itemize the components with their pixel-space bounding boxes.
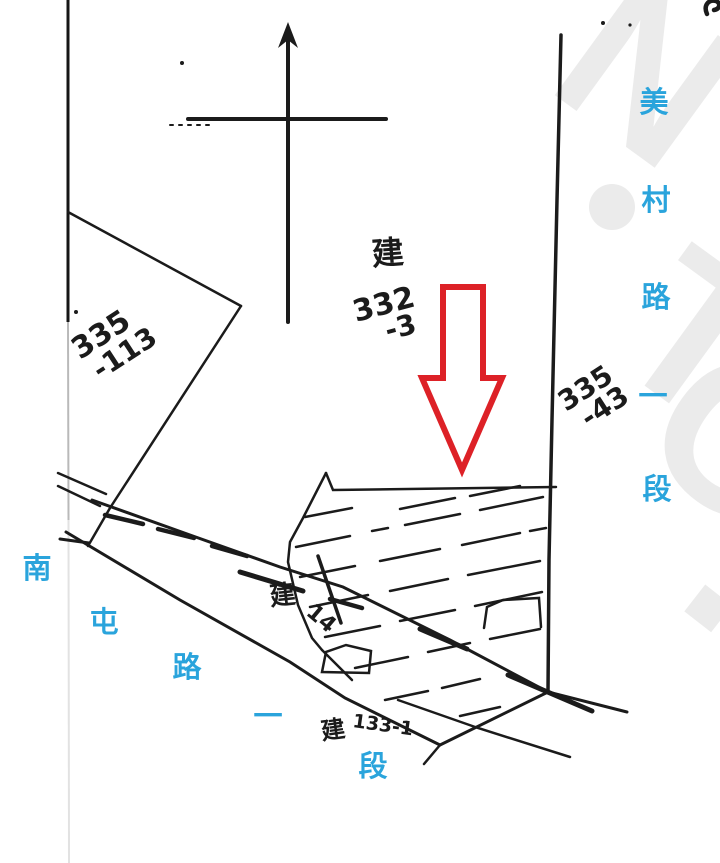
label-jian-133: 建: [319, 714, 347, 745]
road-char: 段: [358, 749, 387, 783]
road-char: 段: [642, 472, 671, 506]
label-parcel-332-3: 332 -3: [349, 280, 425, 354]
target-pointer-arrow: [422, 287, 502, 470]
road-char: 路: [172, 651, 202, 684]
paper-specks: [74, 21, 632, 314]
watermark: N T C: [517, 0, 720, 632]
label-jian-site: 建: [268, 580, 297, 613]
label-parcel-133-1: 133-1: [351, 710, 414, 740]
label-parcel-335-113: 335 -113: [65, 296, 163, 389]
parcel-hatching: [296, 486, 546, 716]
road-char: 南: [22, 552, 51, 585]
watermark-fragment: [684, 585, 720, 633]
cadastral-map: N T C: [0, 0, 720, 863]
road-char: 一: [638, 381, 667, 413]
watermark-dot: [589, 184, 635, 230]
road-char: 路: [641, 281, 671, 314]
parcel-335-113-boundary: [60, 212, 241, 546]
watermark-letter-n: N: [517, 0, 720, 212]
road-char: 美: [639, 86, 668, 119]
road-char: 屯: [89, 606, 118, 639]
sheet-margin-line: [68, 0, 69, 863]
label-jian-332: 建: [370, 233, 405, 273]
map-canvas: N T C: [0, 0, 720, 863]
north-arrow: [170, 22, 386, 322]
road-char: 村: [641, 184, 670, 217]
road-name-nantun: 南 屯 路 一 段: [22, 552, 387, 783]
road-char: 一: [253, 701, 282, 733]
